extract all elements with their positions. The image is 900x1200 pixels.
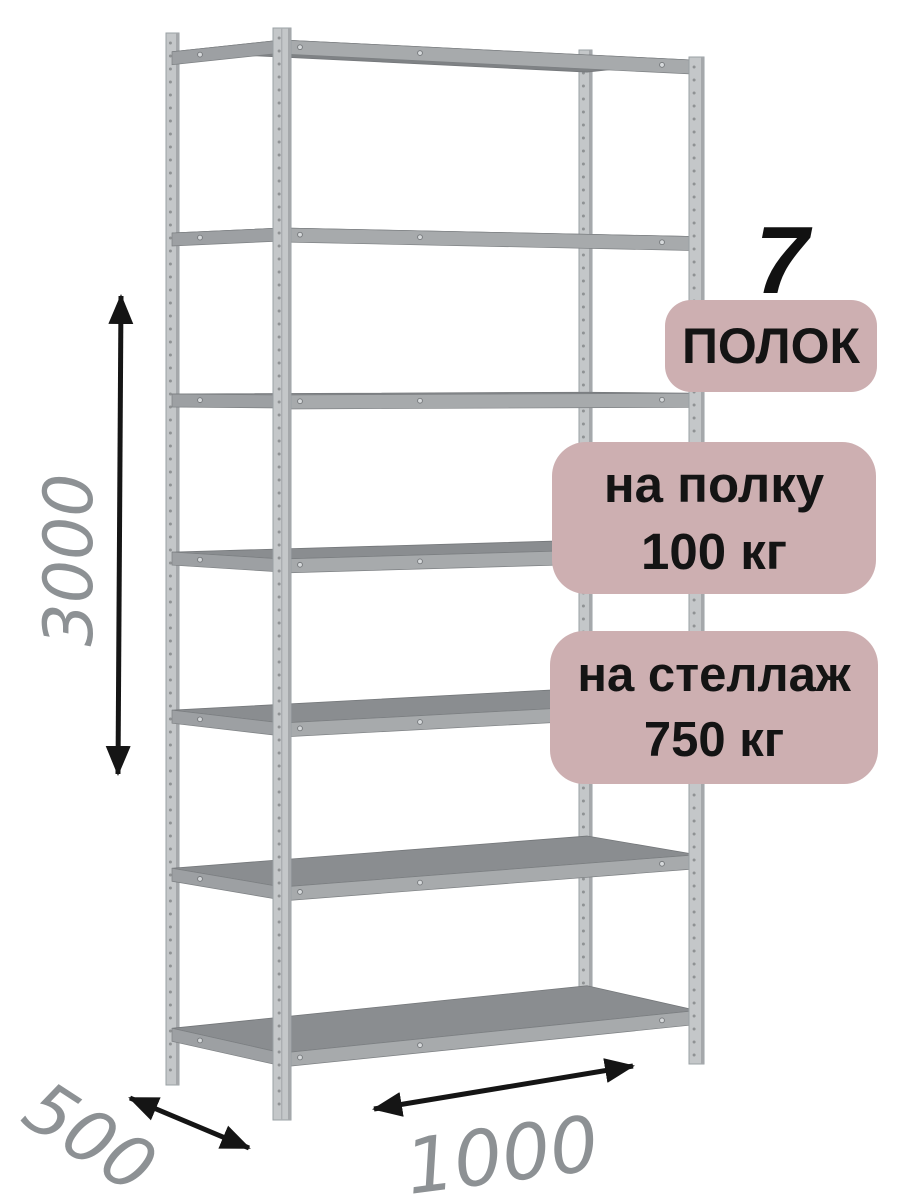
width-dimension-arrow bbox=[374, 1066, 633, 1109]
shelf bbox=[172, 392, 697, 409]
per-shelf-load-line2: 100 кг bbox=[641, 518, 787, 585]
upright-front-left bbox=[273, 28, 291, 1120]
shelf bbox=[172, 228, 697, 251]
dimension-annotations: 3000 1000 500 bbox=[9, 296, 633, 1200]
rack-illustration: 3000 1000 500 bbox=[0, 0, 900, 1200]
height-dimension-label: 3000 bbox=[30, 473, 109, 646]
width-dimension-label: 1000 bbox=[400, 1098, 603, 1200]
shelf bbox=[172, 986, 697, 1067]
per-shelf-load-line1: на полку bbox=[604, 451, 824, 518]
per-shelf-load-badge: на полку 100 кг bbox=[552, 442, 876, 594]
per-rack-load-badge: на стеллаж 750 кг bbox=[550, 631, 878, 784]
per-rack-load-line2: 750 кг bbox=[644, 708, 784, 773]
shelf-count-label: ПОЛОК bbox=[682, 317, 860, 375]
shelf-count-badge: ПОЛОК bbox=[665, 300, 877, 392]
shelf bbox=[172, 40, 697, 74]
height-dimension-arrow bbox=[118, 296, 121, 774]
shelf bbox=[172, 836, 697, 901]
shelf-count-number: 7 bbox=[692, 213, 872, 313]
depth-dimension-label: 500 bbox=[9, 1065, 170, 1200]
product-image: 3000 1000 500 7 ПОЛОК на полку 100 кг на… bbox=[0, 0, 900, 1200]
per-rack-load-line1: на стеллаж bbox=[577, 643, 850, 708]
